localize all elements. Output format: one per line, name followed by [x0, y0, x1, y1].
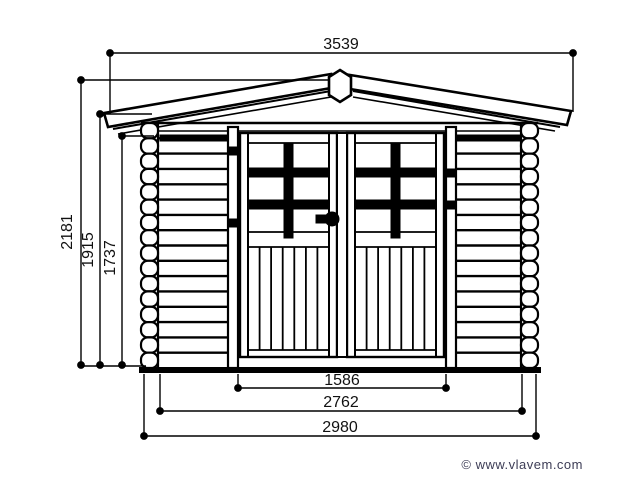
- hinge-left-top: [229, 147, 238, 155]
- log-end-caps-right: [521, 123, 538, 368]
- dim-label-eave-height: 1915: [80, 232, 97, 268]
- base-group: [139, 357, 541, 373]
- door-astragal: [337, 133, 347, 357]
- drawing-page: 3539 2181 1915 1737 1586 2762 2980 © www…: [0, 0, 640, 480]
- roof-fascia-right: [344, 74, 571, 125]
- dim-label-roof-width: 3539: [323, 36, 359, 53]
- wall-logs-left: [158, 138, 228, 352]
- wall-logs-right: [456, 138, 521, 352]
- door-assembly: [228, 127, 456, 368]
- log-end-caps-left: [141, 123, 158, 368]
- door-handle-knob: [325, 212, 339, 226]
- door-post-left: [228, 127, 238, 368]
- copyright-text: © www.vlavem.com: [461, 457, 583, 472]
- shed-elevation-drawing: 3539 2181 1915 1737 1586 2762 2980 © www…: [0, 0, 640, 480]
- roof-fascia-left: [104, 74, 331, 127]
- window-muntin-v-right: [391, 143, 400, 238]
- window-muntin-v-left: [284, 143, 293, 238]
- dim-label-door-width: 1586: [324, 372, 360, 389]
- dim-label-base-width: 2980: [322, 419, 358, 436]
- dim-label-wall-width: 2762: [323, 394, 359, 411]
- dim-label-overall-height: 2181: [59, 214, 76, 250]
- door-post-right: [446, 127, 456, 368]
- roof-finial: [329, 70, 351, 102]
- hinge-right-bottom: [446, 201, 455, 209]
- hinge-left-bottom: [229, 219, 238, 227]
- dim-label-wall-height: 1737: [102, 240, 119, 276]
- hinge-right-top: [446, 169, 455, 177]
